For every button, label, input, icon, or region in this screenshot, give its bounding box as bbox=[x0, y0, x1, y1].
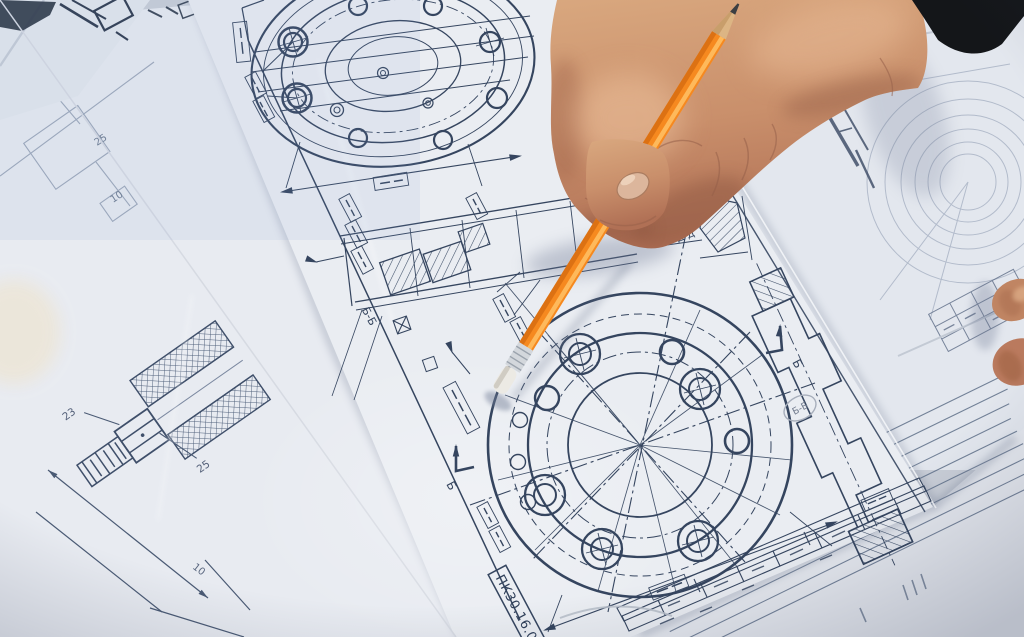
blueprint-photo: 25 10 23 25 bbox=[0, 0, 1024, 637]
photo-scene: 25 10 23 25 bbox=[0, 0, 1024, 637]
vignette bbox=[0, 0, 1024, 637]
